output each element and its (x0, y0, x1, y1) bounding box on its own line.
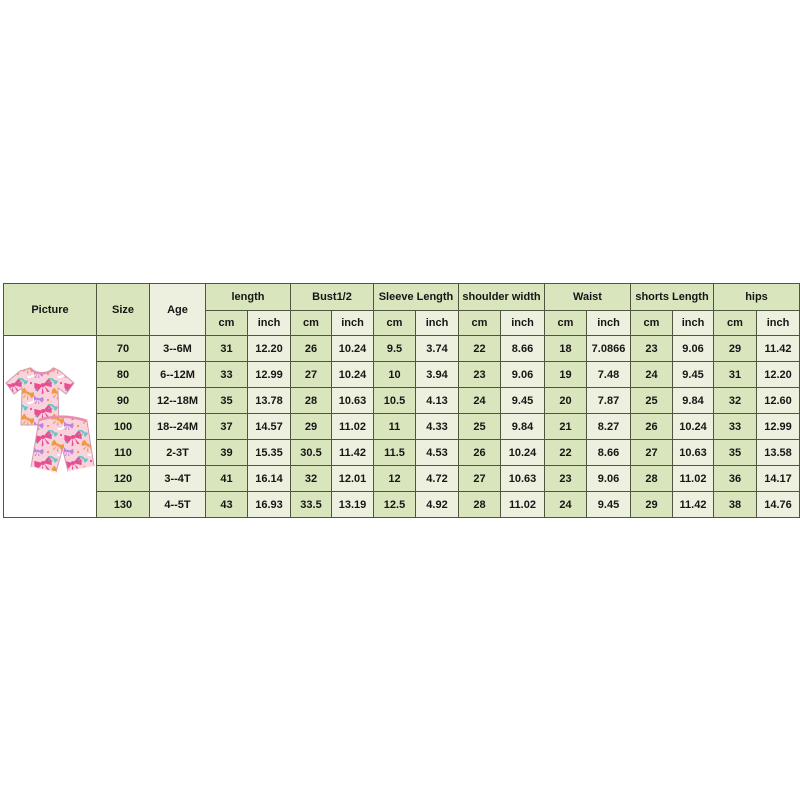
table-row-size-90: 9012--18M3513.782810.6310.54.13249.45207… (4, 388, 800, 414)
cell-length-inch: 14.57 (248, 414, 291, 440)
cell-length-inch: 16.14 (248, 466, 291, 492)
table-row-size-130: 1304--5T4316.9333.513.1912.54.922811.022… (4, 492, 800, 518)
cell-length-cm: 43 (206, 492, 248, 518)
cell-shorts-length-cm: 25 (631, 388, 673, 414)
cell-hips-inch: 12.20 (757, 362, 800, 388)
table-row-size-120: 1203--4T4116.143212.01124.722710.63239.0… (4, 466, 800, 492)
cell-bust1-2-inch: 12.01 (332, 466, 374, 492)
header-bust1-2-cm: cm (291, 311, 332, 336)
cell-waist-inch: 9.45 (587, 492, 631, 518)
cell-shoulder-width-cm: 23 (459, 362, 501, 388)
cell-bust1-2-inch: 10.63 (332, 388, 374, 414)
cell-size: 130 (97, 492, 150, 518)
cell-sleeve-length-cm: 12 (374, 466, 416, 492)
cell-sleeve-length-inch: 4.13 (416, 388, 459, 414)
cell-bust1-2-cm: 29 (291, 414, 332, 440)
cell-length-cm: 33 (206, 362, 248, 388)
cell-length-cm: 35 (206, 388, 248, 414)
cell-length-inch: 16.93 (248, 492, 291, 518)
cell-bust1-2-cm: 32 (291, 466, 332, 492)
cell-shoulder-width-cm: 28 (459, 492, 501, 518)
cell-hips-inch: 14.76 (757, 492, 800, 518)
cell-shoulder-width-inch: 9.06 (501, 362, 545, 388)
cell-age: 12--18M (150, 388, 206, 414)
cell-hips-inch: 14.17 (757, 466, 800, 492)
cell-hips-inch: 12.99 (757, 414, 800, 440)
header-length-cm: cm (206, 311, 248, 336)
header-waist-inch: inch (587, 311, 631, 336)
table-row-size-110: 1102-3T3915.3530.511.4211.54.532610.2422… (4, 440, 800, 466)
picture-cell (4, 336, 97, 518)
header-sleeve-length: Sleeve Length (374, 284, 459, 311)
cell-sleeve-length-inch: 4.92 (416, 492, 459, 518)
cell-hips-cm: 35 (714, 440, 757, 466)
cell-hips-cm: 33 (714, 414, 757, 440)
cell-shorts-length-cm: 24 (631, 362, 673, 388)
cell-bust1-2-cm: 27 (291, 362, 332, 388)
cell-size: 90 (97, 388, 150, 414)
cell-sleeve-length-cm: 9.5 (374, 336, 416, 362)
cell-age: 6--12M (150, 362, 206, 388)
cell-hips-cm: 36 (714, 466, 757, 492)
cell-age: 3--4T (150, 466, 206, 492)
cell-bust1-2-cm: 33.5 (291, 492, 332, 518)
cell-size: 70 (97, 336, 150, 362)
cell-bust1-2-cm: 30.5 (291, 440, 332, 466)
cell-shorts-length-cm: 26 (631, 414, 673, 440)
cell-shoulder-width-cm: 27 (459, 466, 501, 492)
cell-length-inch: 12.99 (248, 362, 291, 388)
cell-hips-inch: 13.58 (757, 440, 800, 466)
cell-sleeve-length-cm: 10.5 (374, 388, 416, 414)
cell-waist-cm: 22 (545, 440, 587, 466)
cell-age: 18--24M (150, 414, 206, 440)
cell-length-inch: 13.78 (248, 388, 291, 414)
header-bust1-2-inch: inch (332, 311, 374, 336)
cell-bust1-2-cm: 28 (291, 388, 332, 414)
header-waist-cm: cm (545, 311, 587, 336)
cell-waist-inch: 7.87 (587, 388, 631, 414)
cell-hips-cm: 29 (714, 336, 757, 362)
cell-waist-cm: 18 (545, 336, 587, 362)
header-age: Age (150, 284, 206, 336)
cell-waist-cm: 23 (545, 466, 587, 492)
header-picture: Picture (4, 284, 97, 336)
cell-bust1-2-inch: 13.19 (332, 492, 374, 518)
cell-sleeve-length-cm: 12.5 (374, 492, 416, 518)
header-sleeve-length-cm: cm (374, 311, 416, 336)
header-shorts-length-inch: inch (673, 311, 714, 336)
cell-shorts-length-inch: 11.02 (673, 466, 714, 492)
header-size: Size (97, 284, 150, 336)
cell-shoulder-width-cm: 26 (459, 440, 501, 466)
table-row-size-80: 806--12M3312.992710.24103.94239.06197.48… (4, 362, 800, 388)
shorts-graphic (31, 416, 94, 471)
cell-length-cm: 31 (206, 336, 248, 362)
cell-age: 3--6M (150, 336, 206, 362)
header-bust1-2: Bust1/2 (291, 284, 374, 311)
header-sleeve-length-inch: inch (416, 311, 459, 336)
cell-bust1-2-inch: 10.24 (332, 362, 374, 388)
cell-waist-inch: 9.06 (587, 466, 631, 492)
cell-sleeve-length-cm: 11.5 (374, 440, 416, 466)
cell-shorts-length-cm: 23 (631, 336, 673, 362)
cell-shoulder-width-inch: 11.02 (501, 492, 545, 518)
cell-size: 80 (97, 362, 150, 388)
cell-shorts-length-inch: 9.45 (673, 362, 714, 388)
cell-hips-cm: 32 (714, 388, 757, 414)
header-group-row: Picture Size Age lengthBust1/2Sleeve Len… (4, 284, 800, 311)
cell-sleeve-length-inch: 3.94 (416, 362, 459, 388)
cell-shorts-length-cm: 28 (631, 466, 673, 492)
header-hips-cm: cm (714, 311, 757, 336)
size-chart-table: Picture Size Age lengthBust1/2Sleeve Len… (3, 283, 800, 518)
cell-size: 120 (97, 466, 150, 492)
header-hips: hips (714, 284, 800, 311)
cell-shoulder-width-cm: 24 (459, 388, 501, 414)
page: Picture Size Age lengthBust1/2Sleeve Len… (0, 0, 800, 800)
cell-shoulder-width-inch: 10.63 (501, 466, 545, 492)
cell-waist-inch: 8.27 (587, 414, 631, 440)
table-row-size-100: 10018--24M3714.572911.02114.33259.84218.… (4, 414, 800, 440)
header-waist: Waist (545, 284, 631, 311)
header-shoulder-width-cm: cm (459, 311, 501, 336)
header-shoulder-width: shoulder width (459, 284, 545, 311)
cell-shoulder-width-inch: 8.66 (501, 336, 545, 362)
cell-length-cm: 37 (206, 414, 248, 440)
cell-sleeve-length-cm: 10 (374, 362, 416, 388)
cell-shorts-length-inch: 9.84 (673, 388, 714, 414)
cell-hips-inch: 11.42 (757, 336, 800, 362)
cell-shorts-length-inch: 11.42 (673, 492, 714, 518)
cell-shorts-length-inch: 9.06 (673, 336, 714, 362)
cell-waist-cm: 21 (545, 414, 587, 440)
header-hips-inch: inch (757, 311, 800, 336)
cell-sleeve-length-inch: 4.53 (416, 440, 459, 466)
cell-shoulder-width-inch: 10.24 (501, 440, 545, 466)
header-shorts-length-cm: cm (631, 311, 673, 336)
cell-hips-inch: 12.60 (757, 388, 800, 414)
product-photo (4, 352, 96, 502)
cell-waist-inch: 7.48 (587, 362, 631, 388)
cell-size: 100 (97, 414, 150, 440)
cell-shoulder-width-cm: 25 (459, 414, 501, 440)
cell-waist-inch: 7.0866 (587, 336, 631, 362)
cell-waist-inch: 8.66 (587, 440, 631, 466)
header-shoulder-width-inch: inch (501, 311, 545, 336)
cell-length-inch: 12.20 (248, 336, 291, 362)
cell-shoulder-width-inch: 9.84 (501, 414, 545, 440)
cell-shorts-length-cm: 29 (631, 492, 673, 518)
cell-length-cm: 41 (206, 466, 248, 492)
cell-size: 110 (97, 440, 150, 466)
cell-age: 4--5T (150, 492, 206, 518)
cell-sleeve-length-inch: 4.72 (416, 466, 459, 492)
cell-bust1-2-inch: 11.02 (332, 414, 374, 440)
cell-length-cm: 39 (206, 440, 248, 466)
cell-shorts-length-inch: 10.63 (673, 440, 714, 466)
cell-bust1-2-cm: 26 (291, 336, 332, 362)
cell-waist-cm: 20 (545, 388, 587, 414)
table-body: 703--6M3112.202610.249.53.74228.66187.08… (4, 336, 800, 518)
cell-sleeve-length-inch: 4.33 (416, 414, 459, 440)
table-row-size-70: 703--6M3112.202610.249.53.74228.66187.08… (4, 336, 800, 362)
cell-length-inch: 15.35 (248, 440, 291, 466)
cell-sleeve-length-cm: 11 (374, 414, 416, 440)
header-length: length (206, 284, 291, 311)
cell-shoulder-width-cm: 22 (459, 336, 501, 362)
cell-bust1-2-inch: 11.42 (332, 440, 374, 466)
cell-hips-cm: 38 (714, 492, 757, 518)
cell-bust1-2-inch: 10.24 (332, 336, 374, 362)
cell-waist-cm: 24 (545, 492, 587, 518)
header-length-inch: inch (248, 311, 291, 336)
cell-shoulder-width-inch: 9.45 (501, 388, 545, 414)
cell-age: 2-3T (150, 440, 206, 466)
cell-shorts-length-cm: 27 (631, 440, 673, 466)
cell-sleeve-length-inch: 3.74 (416, 336, 459, 362)
cell-waist-cm: 19 (545, 362, 587, 388)
header-shorts-length: shorts Length (631, 284, 714, 311)
cell-shorts-length-inch: 10.24 (673, 414, 714, 440)
cell-hips-cm: 31 (714, 362, 757, 388)
